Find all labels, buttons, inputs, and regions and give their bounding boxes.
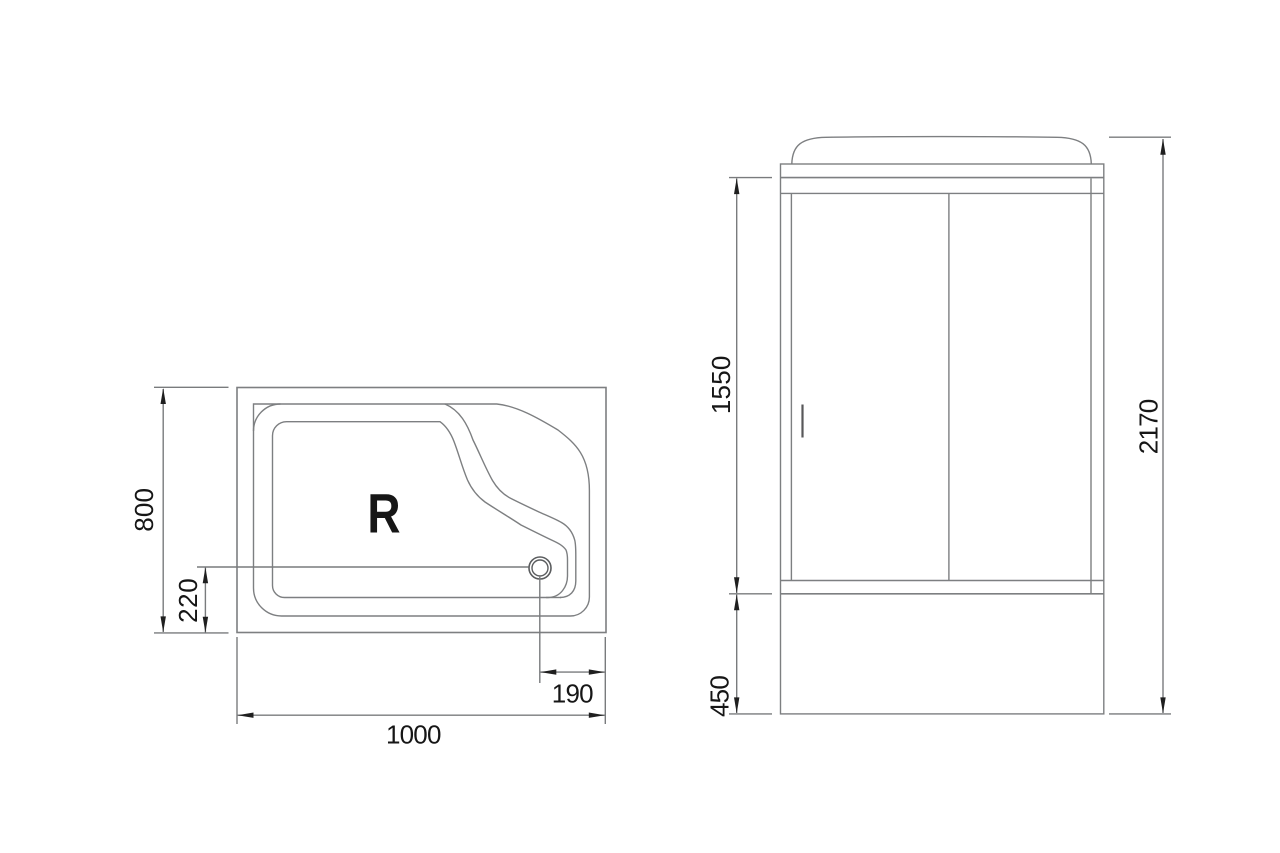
svg-text:450: 450 bbox=[705, 676, 735, 717]
svg-text:220: 220 bbox=[173, 578, 203, 623]
svg-text:190: 190 bbox=[552, 679, 593, 709]
svg-text:800: 800 bbox=[129, 488, 159, 532]
svg-text:R: R bbox=[367, 482, 400, 544]
svg-text:2170: 2170 bbox=[1134, 399, 1164, 454]
svg-text:1550: 1550 bbox=[706, 355, 736, 414]
svg-text:1000: 1000 bbox=[386, 720, 441, 750]
